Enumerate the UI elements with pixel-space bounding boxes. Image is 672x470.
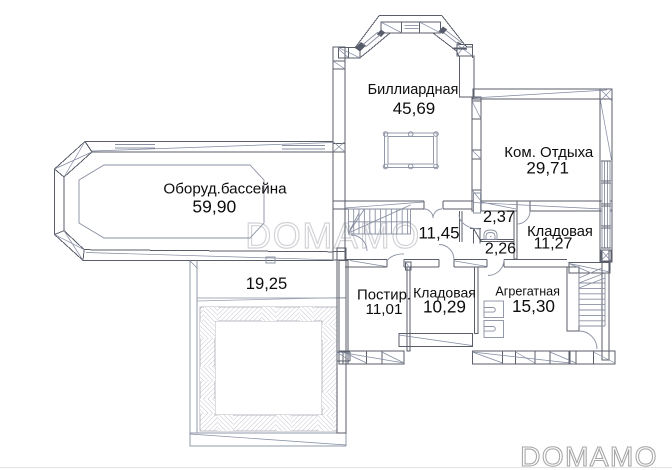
svg-text:15,30: 15,30 [512,296,555,316]
svg-text:59,90: 59,90 [192,197,236,217]
svg-text:45,69: 45,69 [393,99,436,118]
svg-text:2,37: 2,37 [483,208,515,226]
svg-text:DOMAMO: DOMAMO [520,440,658,470]
svg-text:11,45: 11,45 [418,224,459,243]
svg-text:11,27: 11,27 [534,236,573,253]
svg-text:Биллиардная: Биллиардная [368,82,459,98]
svg-text:2,26: 2,26 [485,241,516,258]
svg-text:19,25: 19,25 [246,274,288,293]
svg-text:29,71: 29,71 [526,159,569,178]
svg-text:11,01: 11,01 [366,301,403,318]
svg-text:Оборуд.бассейна: Оборуд.бассейна [163,181,287,198]
svg-text:10,29: 10,29 [423,297,466,317]
